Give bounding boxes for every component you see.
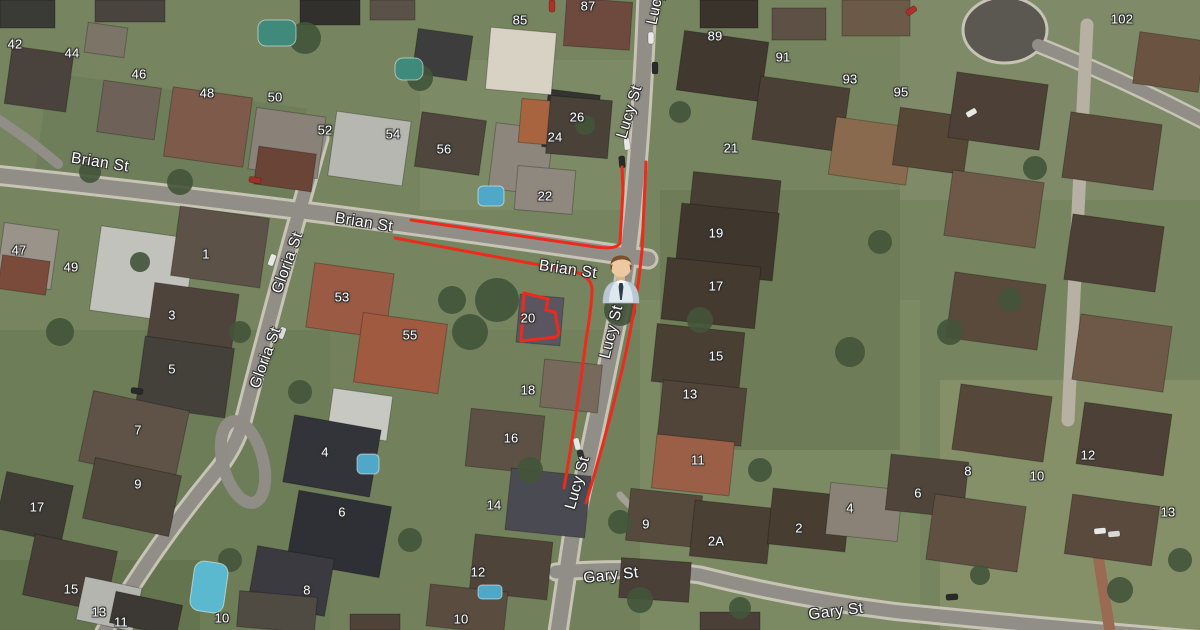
- businessman-icon: [601, 250, 641, 304]
- satellite-imagery-layer: [0, 0, 1200, 630]
- satellite-map[interactable]: Brian StBrian StBrian StGloria StGloria …: [0, 0, 1200, 630]
- person-marker[interactable]: [601, 250, 641, 304]
